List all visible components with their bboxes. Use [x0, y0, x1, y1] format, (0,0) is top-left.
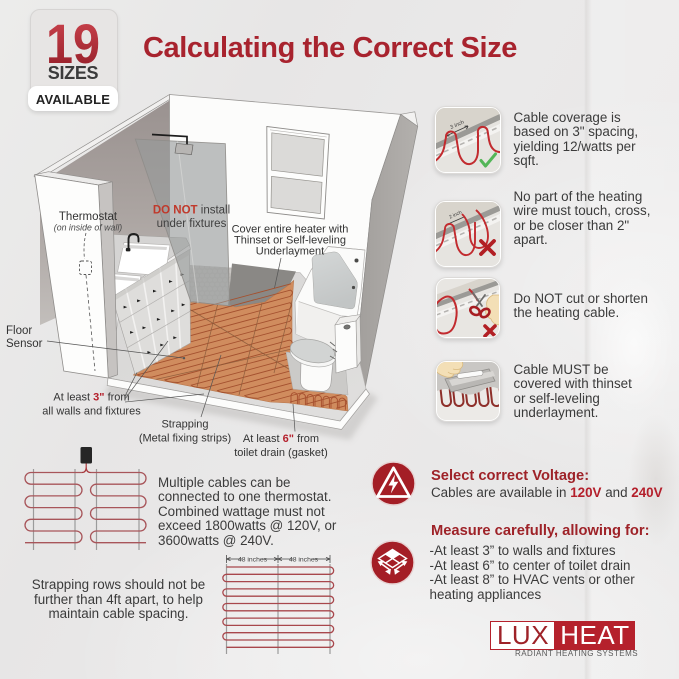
svg-text:19: 19: [46, 14, 100, 68]
svg-text:all walls and fixtures: all walls and fixtures: [42, 406, 141, 418]
svg-text:DO NOT install: DO NOT install: [153, 205, 230, 217]
svg-text:(on inside of wall): (on inside of wall): [54, 223, 123, 233]
svg-text:toilet drain (gasket): toilet drain (gasket): [234, 447, 328, 459]
svg-text:48 inches: 48 inches: [238, 557, 268, 564]
svg-text:Thermostat: Thermostat: [59, 211, 118, 223]
svg-text:At least 3" from: At least 3" from: [53, 392, 129, 404]
svg-text:under fixtures: under fixtures: [157, 218, 227, 230]
svg-text:Underlayment: Underlayment: [256, 246, 324, 258]
svg-text:At least 6" from: At least 6" from: [243, 433, 319, 445]
svg-text:Floor: Floor: [6, 325, 32, 337]
svg-text:Strapping: Strapping: [161, 419, 208, 431]
svg-text:Sensor: Sensor: [6, 338, 43, 350]
svg-text:48 inches: 48 inches: [289, 557, 319, 564]
